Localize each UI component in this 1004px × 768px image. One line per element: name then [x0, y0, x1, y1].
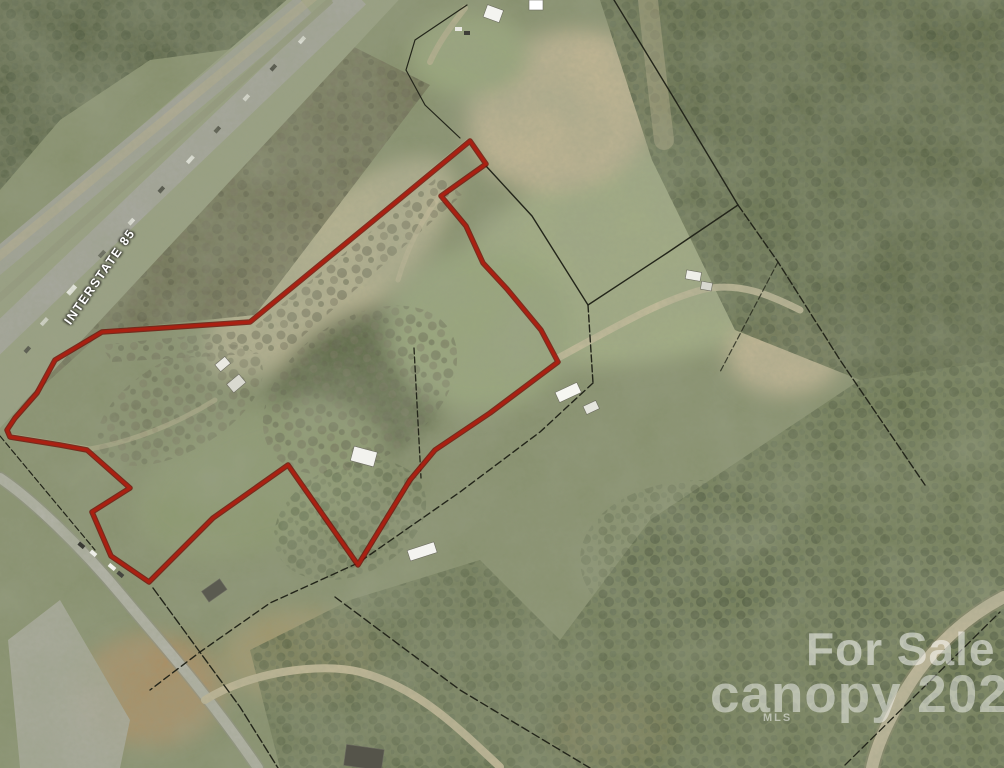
house-roof [529, 0, 543, 10]
car [464, 31, 470, 35]
noise-fine [0, 0, 1004, 768]
car [455, 27, 462, 31]
shed-roof [700, 281, 712, 291]
aerial-photo: INTERSTATE 85 For Sale canopy 2022 MLS [0, 0, 1004, 768]
terrain-canvas [0, 0, 1004, 768]
